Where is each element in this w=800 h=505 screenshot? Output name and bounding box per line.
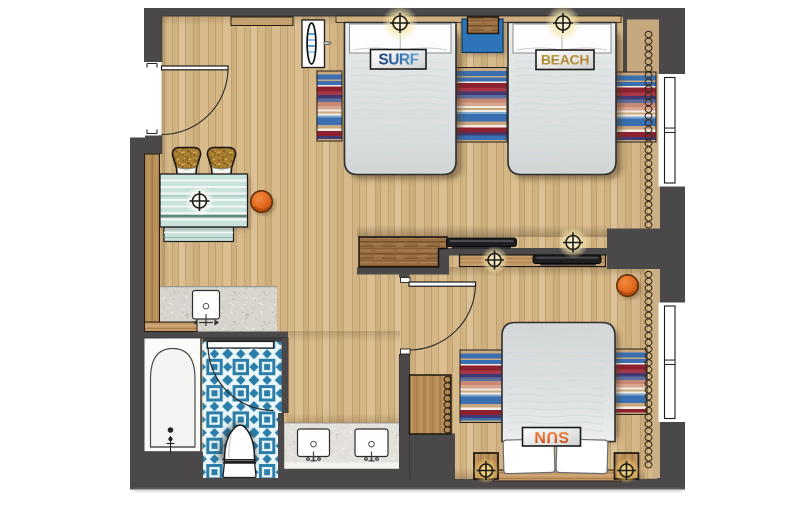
svg-text:BEACH: BEACH: [541, 52, 589, 68]
svg-text:SURF: SURF: [378, 52, 418, 69]
svg-text:SUN: SUN: [534, 428, 569, 445]
